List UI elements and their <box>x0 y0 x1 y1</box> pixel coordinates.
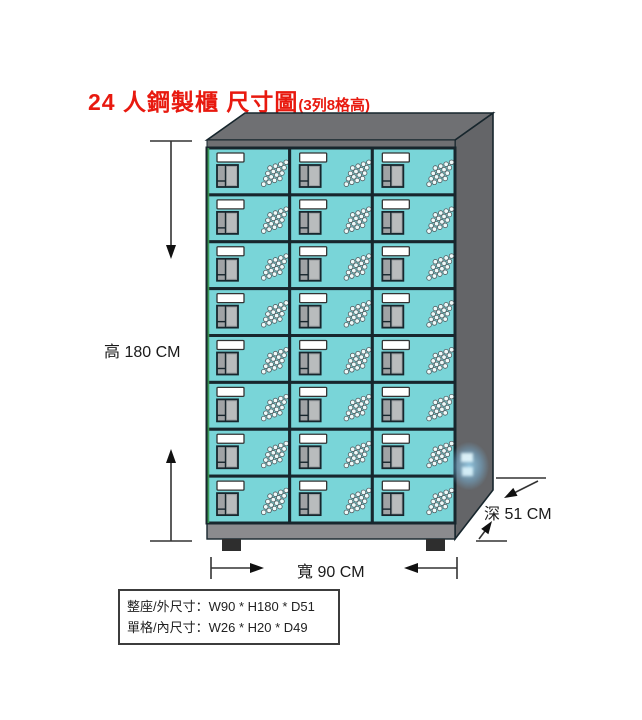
name-plate <box>217 341 244 350</box>
page: 24 人鋼製櫃 尺寸圖(3列8格高) <box>0 0 642 720</box>
locker-cell <box>372 382 455 429</box>
lock-handle-icon <box>217 446 238 468</box>
lock-handle-icon <box>300 446 321 468</box>
name-plate <box>217 387 244 396</box>
name-plate <box>300 481 327 490</box>
arrow-right-icon <box>250 563 264 573</box>
locker-cell <box>372 289 455 336</box>
lock-handle-icon <box>382 165 403 187</box>
locker-cell <box>207 382 290 429</box>
locker-cell <box>290 336 373 383</box>
lock-handle-icon <box>300 353 321 375</box>
name-plate <box>300 387 327 396</box>
depth-dimension-label: 深 51 CM <box>484 500 552 524</box>
locker-cell <box>207 336 290 383</box>
lock-handle-icon <box>382 399 403 421</box>
watermark <box>449 442 489 490</box>
spec-box: 整座/外尺寸：W90 * H180 * D51 單格/內尺寸：W26 * H20… <box>118 589 340 645</box>
lock-handle-icon <box>300 165 321 187</box>
name-plate <box>382 294 409 303</box>
width-dimension-label: 寬 90 CM <box>297 558 365 582</box>
lock-handle-icon <box>300 212 321 234</box>
locker-cell <box>207 476 290 523</box>
arrow-left-icon <box>404 563 418 573</box>
lock-handle-icon <box>300 493 321 515</box>
locker-grid <box>207 148 455 523</box>
name-plate <box>300 153 327 162</box>
lock-handle-icon <box>382 493 403 515</box>
lock-handle-icon <box>382 259 403 281</box>
name-plate <box>217 153 244 162</box>
name-plate <box>382 200 409 209</box>
name-plate <box>217 434 244 443</box>
foot-right <box>426 539 445 551</box>
locker-cell <box>372 242 455 289</box>
lock-handle-icon <box>382 212 403 234</box>
locker-cell <box>290 429 373 476</box>
locker-cell <box>372 429 455 476</box>
arrow-down-icon <box>166 245 176 259</box>
name-plate <box>382 153 409 162</box>
lock-handle-icon <box>217 306 238 328</box>
locker-cell <box>207 429 290 476</box>
name-plate <box>217 294 244 303</box>
locker-cell <box>372 336 455 383</box>
locker-cell <box>207 242 290 289</box>
name-plate <box>382 247 409 256</box>
cabinet-top <box>207 113 493 140</box>
spec-compartment: 單格/內尺寸：W26 * H20 * D49 <box>127 617 331 638</box>
lock-handle-icon <box>217 493 238 515</box>
locker-cell <box>290 382 373 429</box>
name-plate <box>217 247 244 256</box>
name-plate <box>217 481 244 490</box>
name-plate <box>382 387 409 396</box>
name-plate <box>300 247 327 256</box>
arrow-down-left-icon <box>504 488 518 498</box>
lock-handle-icon <box>382 353 403 375</box>
cabinet-base <box>207 523 455 539</box>
watermark-glyphs <box>459 450 477 480</box>
name-plate <box>300 341 327 350</box>
foot-left <box>222 539 241 551</box>
locker-cell <box>290 195 373 242</box>
lock-handle-icon <box>300 399 321 421</box>
name-plate <box>300 200 327 209</box>
locker-cell <box>372 195 455 242</box>
lock-handle-icon <box>217 259 238 281</box>
lock-handle-icon <box>300 306 321 328</box>
lock-handle-icon <box>217 165 238 187</box>
locker-cell <box>290 476 373 523</box>
lock-handle-icon <box>382 446 403 468</box>
locker-cell <box>207 148 290 195</box>
lock-handle-icon <box>382 306 403 328</box>
name-plate <box>300 434 327 443</box>
lock-handle-icon <box>217 212 238 234</box>
spec-overall: 整座/外尺寸：W90 * H180 * D51 <box>127 596 331 617</box>
name-plate <box>382 481 409 490</box>
lock-handle-icon <box>300 259 321 281</box>
name-plate <box>382 341 409 350</box>
locker-cell <box>207 195 290 242</box>
name-plate <box>217 200 244 209</box>
locker-cell <box>290 289 373 336</box>
lock-handle-icon <box>217 399 238 421</box>
arrow-up-icon <box>166 449 176 463</box>
locker-cell <box>372 148 455 195</box>
locker-cell <box>290 242 373 289</box>
height-dimension-label: 高 180 CM <box>104 338 180 362</box>
locker-cell <box>372 476 455 523</box>
locker-cell <box>207 289 290 336</box>
name-plate <box>300 294 327 303</box>
name-plate <box>382 434 409 443</box>
lock-handle-icon <box>217 353 238 375</box>
locker-cell <box>290 148 373 195</box>
